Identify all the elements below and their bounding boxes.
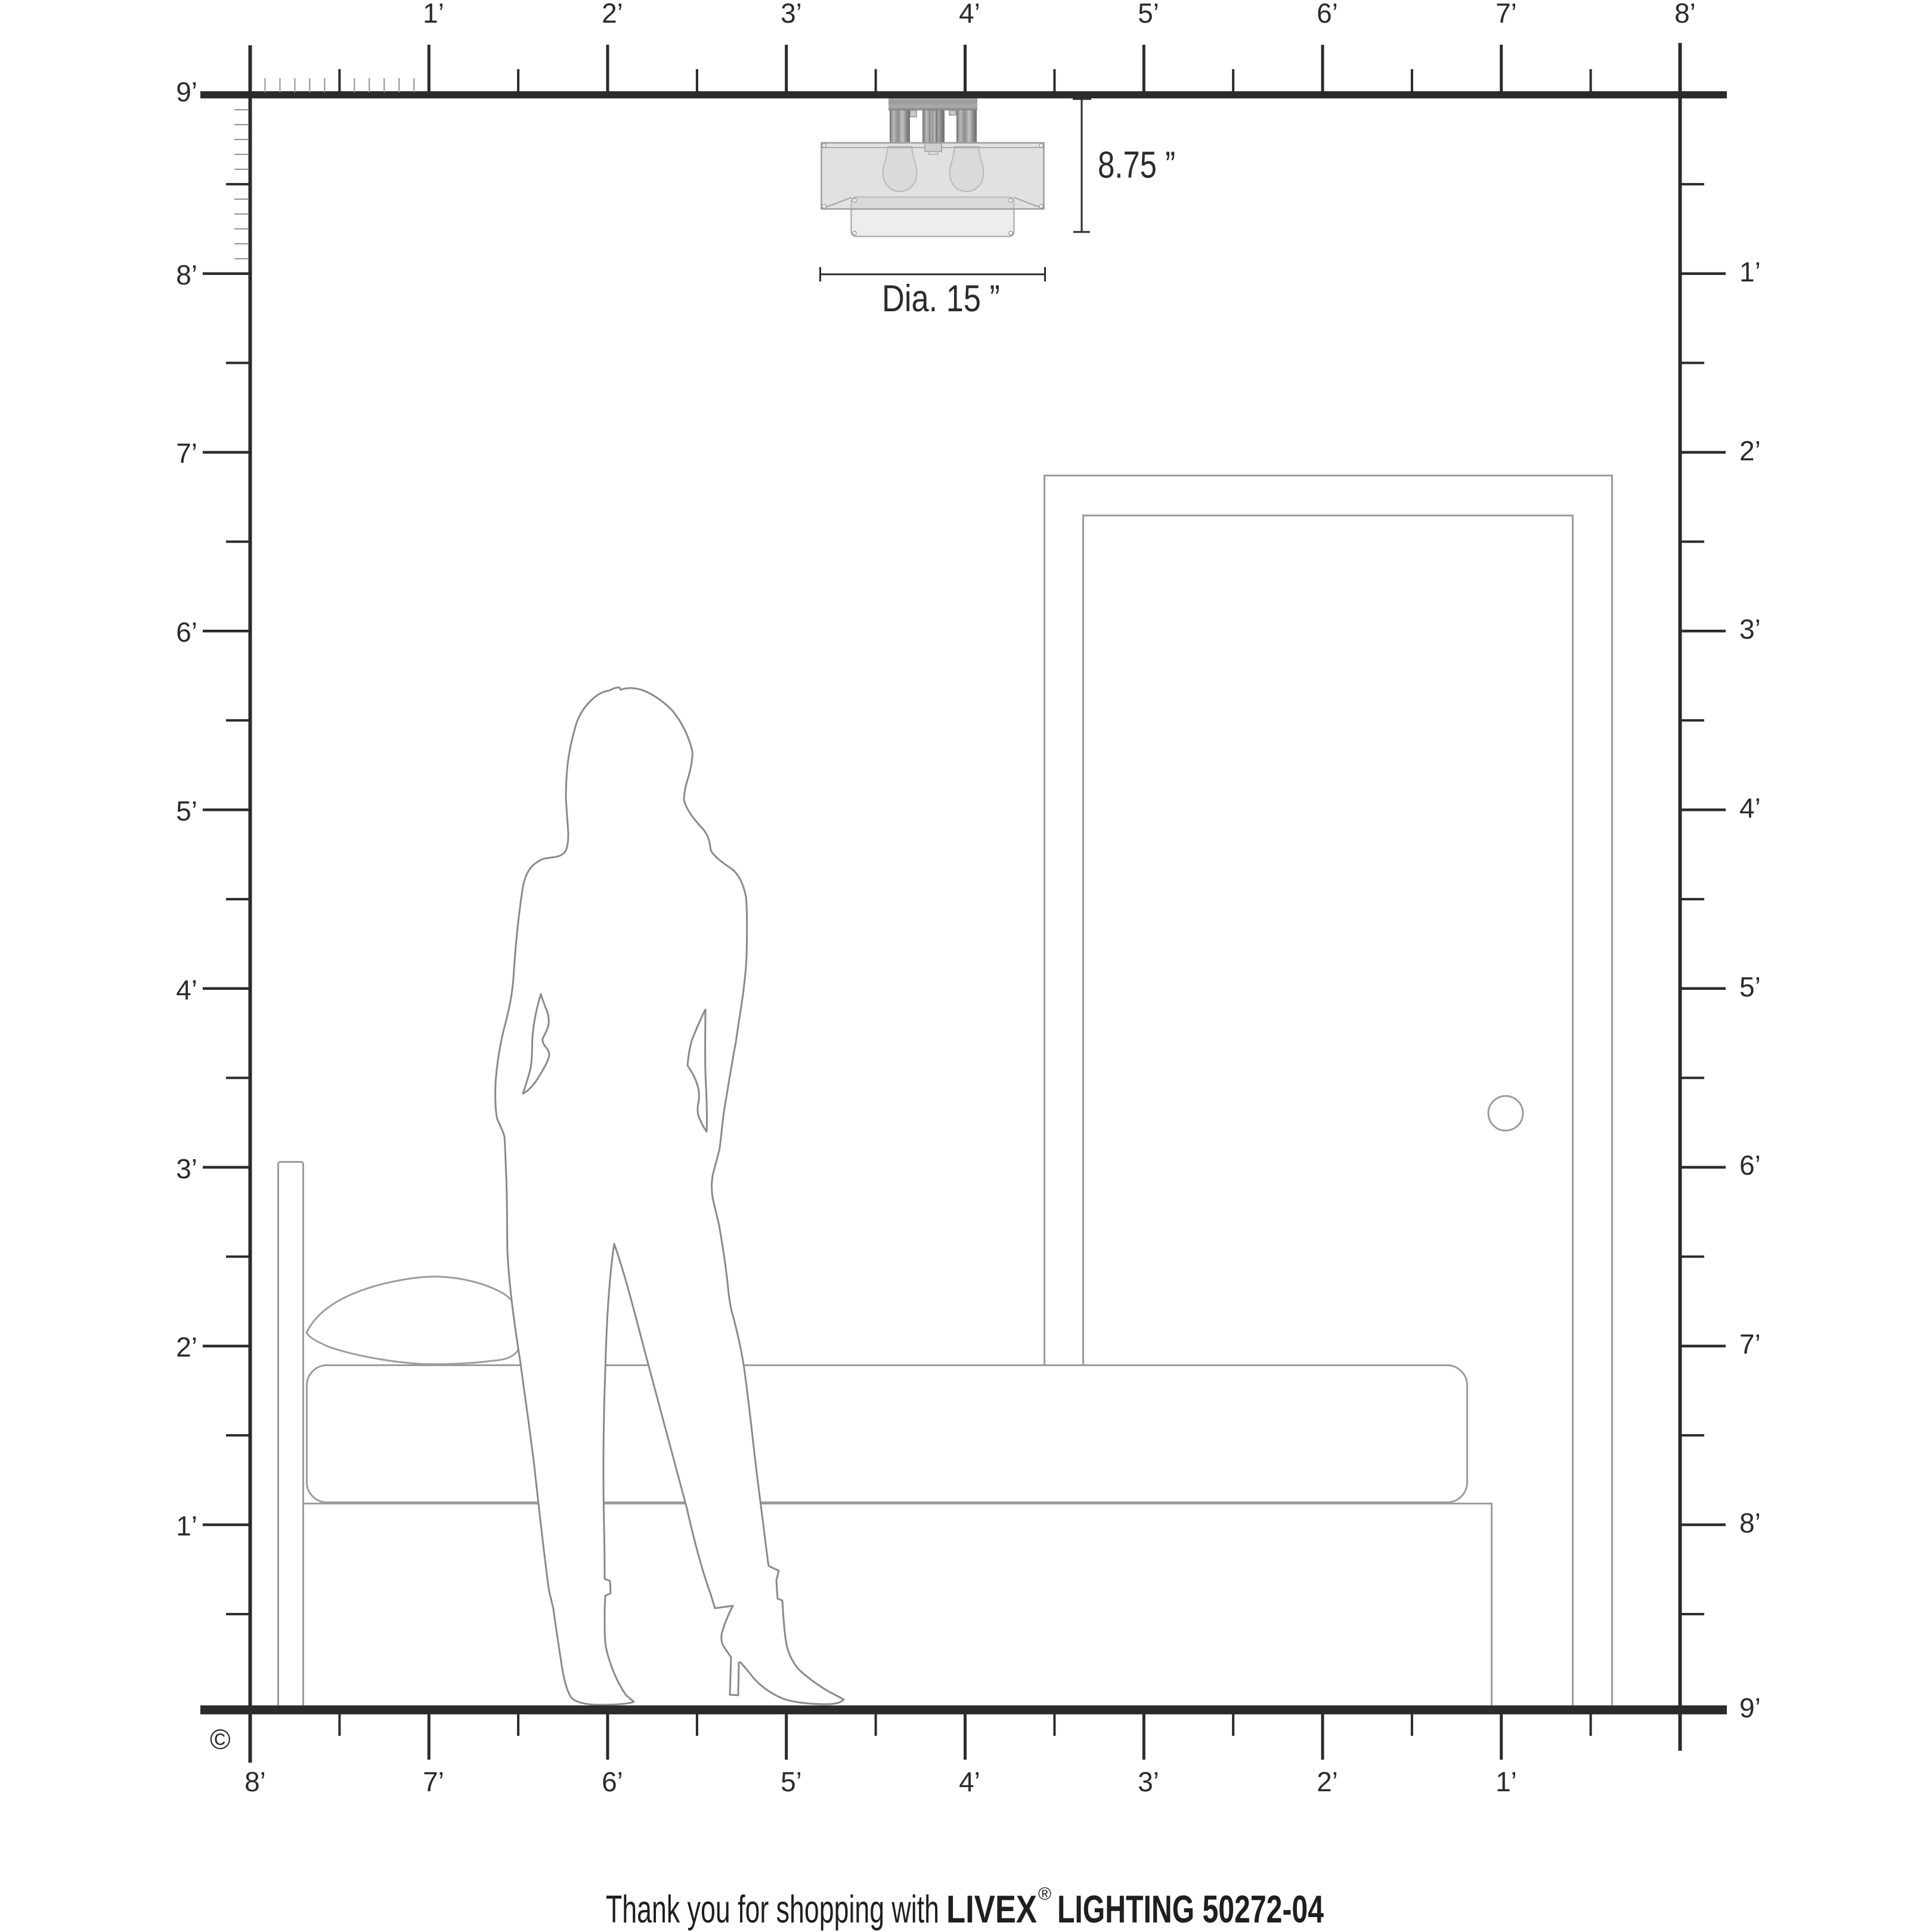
svg-text:1’: 1’: [1739, 256, 1761, 287]
svg-text:LIGHTING 50272-04: LIGHTING 50272-04: [1057, 1887, 1324, 1931]
svg-text:6’: 6’: [602, 1766, 623, 1797]
svg-text:4’: 4’: [959, 0, 980, 29]
svg-text:1’: 1’: [1496, 1766, 1517, 1797]
svg-text:8’: 8’: [1739, 1507, 1761, 1538]
svg-text:3’: 3’: [1138, 1766, 1159, 1797]
svg-text:6’: 6’: [1739, 1150, 1761, 1181]
svg-text:Dia. 15 ”: Dia. 15 ”: [882, 278, 1000, 320]
svg-text:7’: 7’: [176, 438, 197, 469]
svg-text:3’: 3’: [781, 0, 802, 29]
svg-text:©: ©: [210, 1723, 231, 1755]
svg-text:4’: 4’: [1739, 792, 1761, 823]
svg-text:1’: 1’: [423, 0, 444, 29]
svg-text:2’: 2’: [1739, 435, 1761, 466]
svg-text:9’: 9’: [176, 76, 197, 107]
svg-text:LIVEX: LIVEX: [946, 1887, 1037, 1931]
svg-text:5’: 5’: [1138, 0, 1159, 29]
svg-text:Thank you for shopping with: Thank you for shopping with: [606, 1887, 939, 1931]
svg-text:3’: 3’: [176, 1153, 197, 1184]
svg-text:4’: 4’: [959, 1766, 980, 1797]
svg-text:5’: 5’: [1739, 971, 1761, 1002]
svg-text:7’: 7’: [1739, 1329, 1761, 1360]
svg-text:2’: 2’: [602, 0, 623, 29]
svg-text:2’: 2’: [176, 1332, 197, 1363]
svg-text:8.75 ”: 8.75 ”: [1098, 144, 1175, 186]
svg-text:1’: 1’: [176, 1510, 197, 1541]
svg-text:6’: 6’: [176, 617, 197, 648]
svg-text:7’: 7’: [1496, 0, 1517, 29]
svg-text:®: ®: [1038, 1884, 1051, 1904]
svg-text:8’: 8’: [1674, 0, 1696, 29]
svg-text:5’: 5’: [176, 795, 197, 826]
svg-text:4’: 4’: [176, 974, 197, 1005]
svg-text:7’: 7’: [423, 1766, 444, 1797]
svg-text:8’: 8’: [176, 259, 197, 290]
svg-text:2’: 2’: [1317, 1766, 1338, 1797]
svg-text:5’: 5’: [781, 1766, 802, 1797]
svg-text:8’: 8’: [244, 1766, 266, 1797]
svg-text:6’: 6’: [1317, 0, 1338, 29]
svg-text:3’: 3’: [1739, 614, 1761, 645]
svg-text:9’: 9’: [1739, 1692, 1761, 1723]
